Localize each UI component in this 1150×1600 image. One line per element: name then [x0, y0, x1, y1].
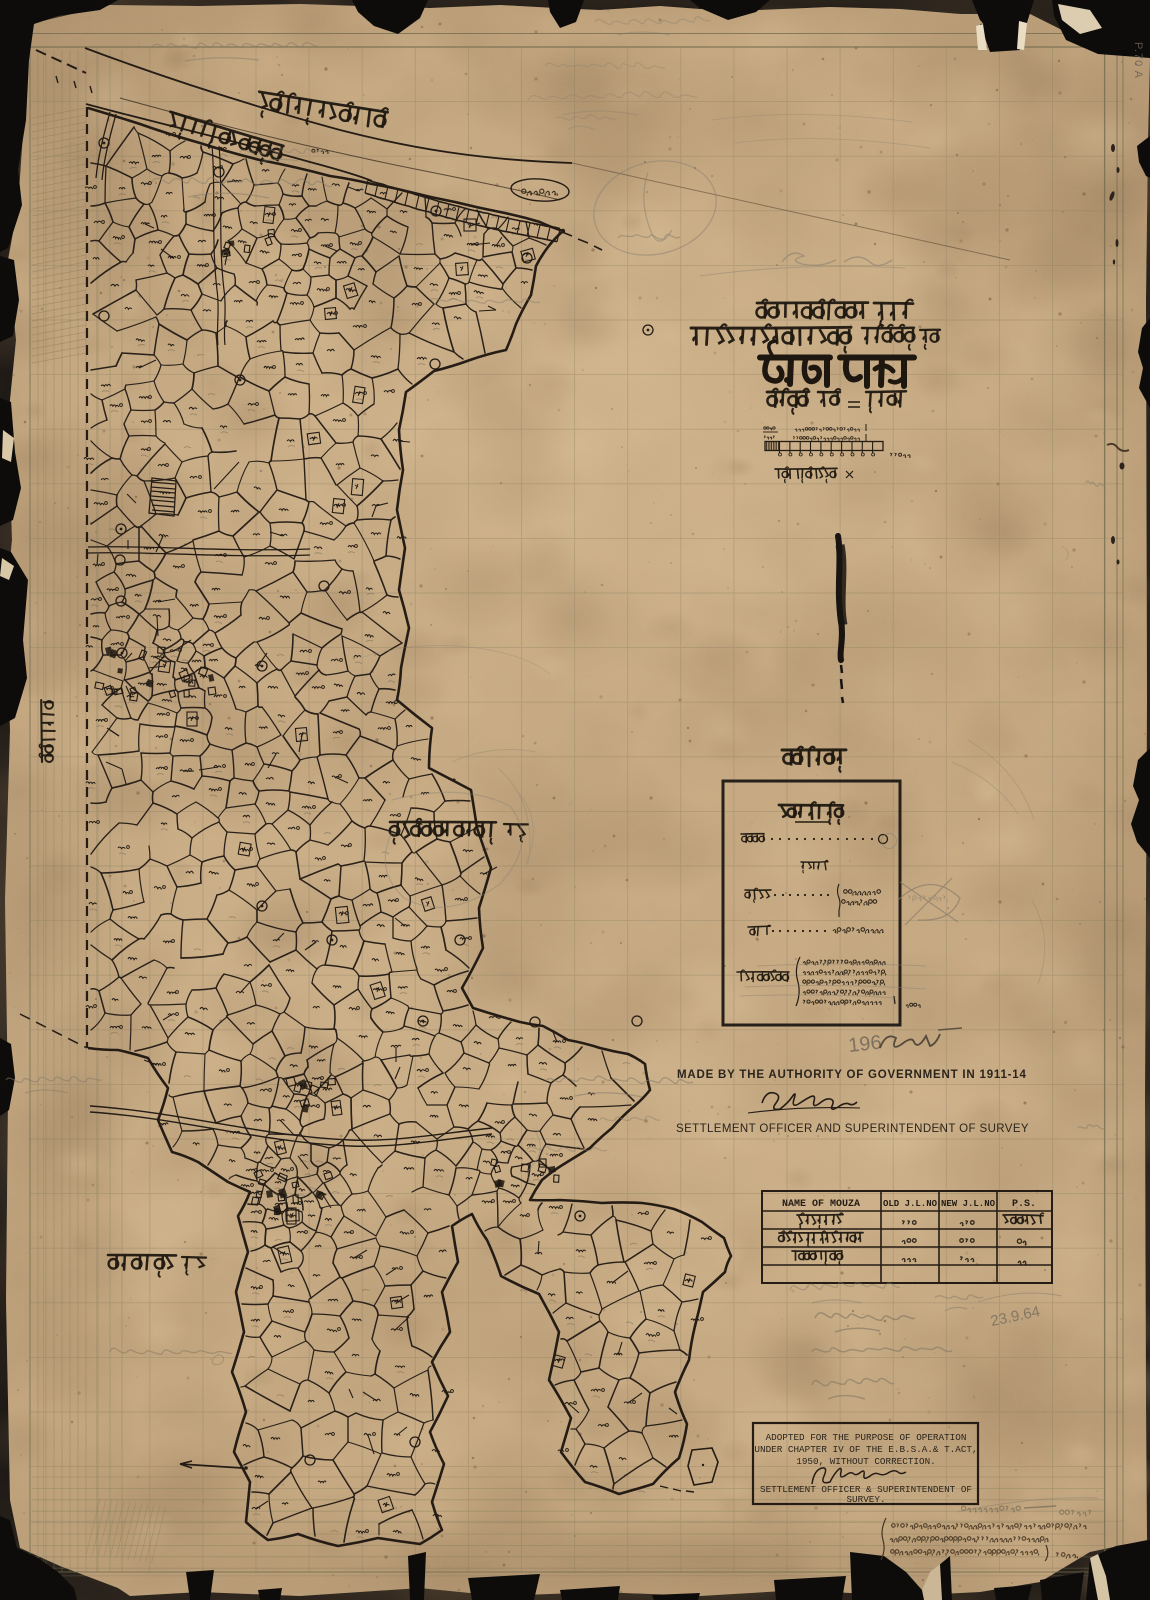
svg-text:196: 196: [847, 1032, 882, 1057]
svg-text:P.70 A: P.70 A: [1132, 42, 1144, 79]
svg-text:OLD J.L.NO: OLD J.L.NO: [883, 1199, 938, 1209]
svg-text:P.S.: P.S.: [1012, 1199, 1036, 1210]
svg-text:NEW J.L.NO: NEW J.L.NO: [941, 1199, 996, 1209]
svg-text:SURVEY.: SURVEY.: [846, 1494, 885, 1505]
svg-text:UNDER CHAPTER IV OF THE E.B.S.: UNDER CHAPTER IV OF THE E.B.S.A.& T.ACT,: [754, 1444, 977, 1455]
svg-text:SETTLEMENT OFFICER AND SUPERIN: SETTLEMENT OFFICER AND SUPERINTENDENT OF…: [676, 1123, 1029, 1135]
svg-text:MADE BY THE AUTHORITY OF GOVER: MADE BY THE AUTHORITY OF GOVERNMENT IN 1…: [677, 1069, 1027, 1081]
svg-text:NAME OF MOUZA: NAME OF MOUZA: [782, 1199, 860, 1210]
svg-text:1950, WITHOUT CORRECTION.: 1950, WITHOUT CORRECTION.: [796, 1456, 935, 1467]
svg-text:ADOPTED FOR THE PURPOSE OF OPE: ADOPTED FOR THE PURPOSE OF OPERATION: [766, 1432, 967, 1443]
